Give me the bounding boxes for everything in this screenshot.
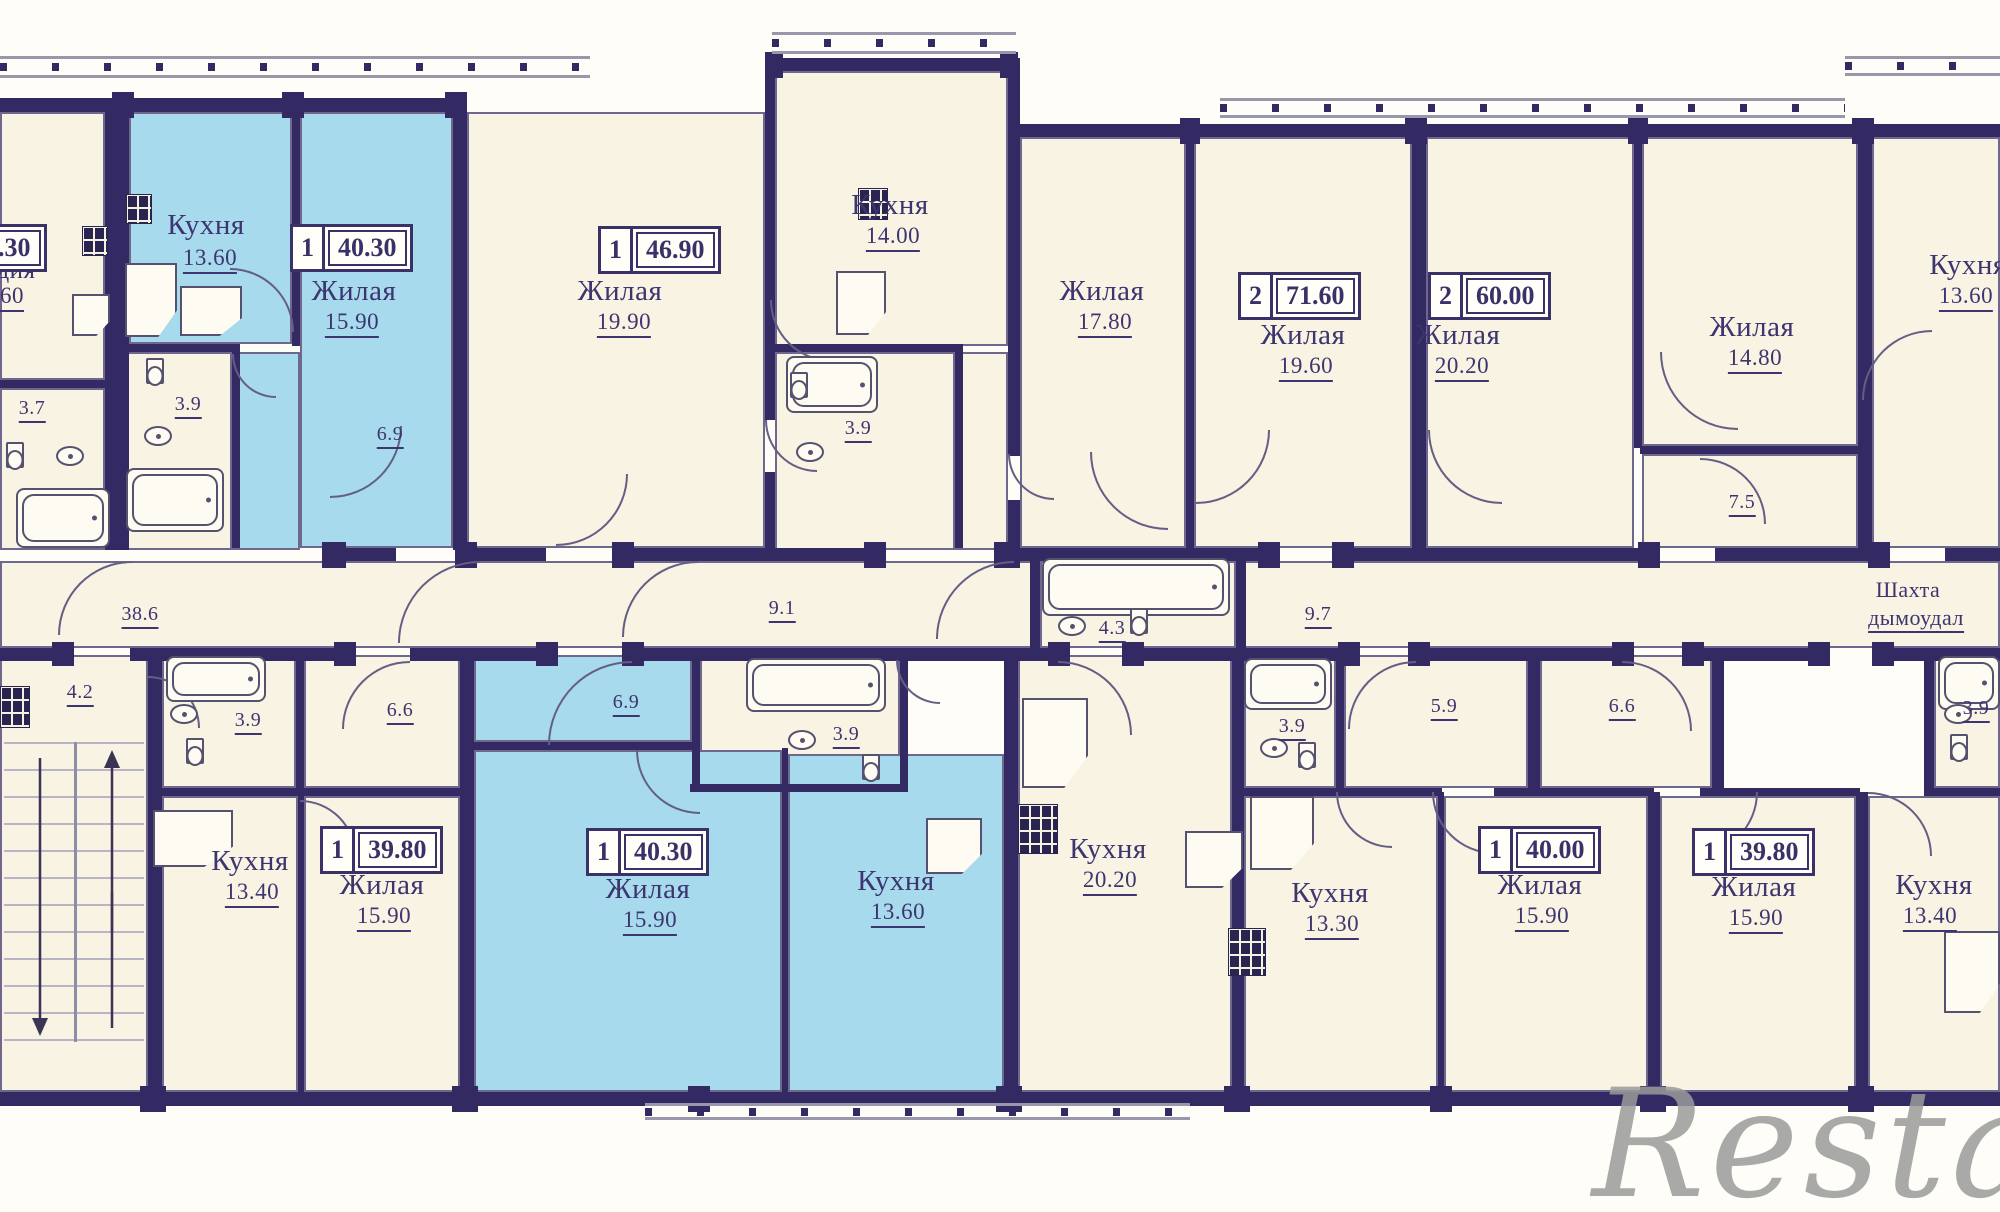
label-13.40: 13.40 [1903, 904, 1957, 932]
wall [1856, 792, 1868, 1094]
label-3.9: 3.9 [1279, 716, 1306, 741]
wall [1872, 642, 1894, 666]
label-Кухня: Кухня [1291, 878, 1369, 908]
label-Жилая: Жилая [578, 276, 663, 306]
sink-icon [144, 426, 172, 446]
sink-icon [1260, 738, 1288, 758]
wall [864, 542, 886, 568]
label-3.9: 3.9 [833, 724, 860, 749]
wall [1338, 642, 1360, 666]
vent-shaft-icon [0, 686, 30, 728]
door-arc-icon [1008, 454, 1054, 500]
badge-room-count: 1 [1695, 831, 1727, 873]
wall [322, 542, 346, 568]
wall [1715, 548, 1877, 561]
label-15.90: 15.90 [623, 908, 677, 936]
wall [1224, 1086, 1250, 1112]
label-3.9: 3.9 [175, 394, 202, 419]
sink-icon [788, 730, 816, 750]
badge-total-area: 39.80 [1730, 834, 1809, 870]
badge-room-count: 1 [601, 229, 633, 271]
wall [765, 52, 783, 78]
wall [1186, 124, 1194, 548]
label-13.60: 13.60 [183, 246, 237, 274]
label-Кухня: Кухня [211, 846, 289, 876]
label-Кухня: Кухня [167, 210, 245, 240]
label-Жилая: Жилая [1712, 872, 1797, 902]
label-3.9: 3.9 [235, 710, 262, 735]
badge-total-area: 40.30 [624, 834, 703, 870]
sink-icon [1058, 616, 1086, 636]
badge-room-count: 1 [1481, 829, 1513, 871]
wall [52, 642, 74, 666]
wall [1924, 655, 1934, 789]
wall [0, 648, 60, 661]
apartment-badge: 271.60 [1238, 272, 1361, 320]
badge-total-area: 40.00 [1516, 832, 1595, 868]
wall [0, 380, 110, 388]
label-13.30: 13.30 [1305, 912, 1359, 940]
label-15.90: 15.90 [357, 904, 411, 932]
label-14.80: 14.80 [1728, 346, 1782, 374]
toilet-icon [1298, 742, 1316, 768]
sink-icon [170, 704, 198, 724]
wall [445, 92, 467, 118]
balcony-rail [1220, 98, 1845, 118]
wall [1180, 118, 1200, 144]
label-Жилая: Жилая [1498, 870, 1583, 900]
wall [140, 1086, 166, 1112]
balcony-rail [772, 32, 1016, 54]
badge-total-area: 60.00 [1466, 278, 1545, 314]
label-3.7: 3.7 [19, 398, 46, 423]
label-6.9: 6.9 [613, 692, 640, 717]
label-19.60: 19.60 [1279, 354, 1333, 382]
toilet-icon [862, 754, 880, 780]
wall [782, 748, 788, 1096]
balcony-rail [0, 56, 590, 78]
toilet-icon [146, 358, 164, 384]
toilet-icon [790, 372, 808, 398]
badge-room-count: 2 [1241, 275, 1273, 317]
badge-room-count: 2 [1431, 275, 1463, 317]
apartment-badge: 140.00 [1478, 826, 1601, 874]
wall [1634, 124, 1642, 448]
bathtub-icon [166, 656, 266, 702]
bathtub-icon [1244, 658, 1332, 710]
label-15.90: 15.90 [1729, 906, 1783, 934]
label-Жилая: Жилая [340, 870, 425, 900]
bathtub-icon [16, 488, 110, 548]
wall [1258, 542, 1280, 568]
label-14.00: 14.00 [866, 224, 920, 252]
wall [460, 655, 474, 1099]
wall [1405, 118, 1427, 144]
vent-shaft-icon [126, 194, 152, 224]
sink-icon [796, 442, 824, 462]
label-15.90: 15.90 [1515, 904, 1569, 932]
wall [1494, 788, 1654, 796]
label-6.9: 6.9 [377, 424, 404, 449]
badge-total-area: 71.60 [1276, 278, 1355, 314]
toilet-icon [186, 738, 204, 764]
wall [1000, 52, 1018, 78]
label-Жилая: Жилая [1261, 320, 1346, 350]
label-4.2: 4.2 [67, 682, 94, 707]
balcony-rail [645, 1103, 1190, 1120]
wall [1438, 792, 1444, 1094]
wall [1640, 446, 1864, 454]
bathtub-icon [746, 658, 886, 712]
label-60: 60 [0, 284, 24, 312]
apartment-badge: 0.30 [0, 224, 47, 272]
label-Кухня: Кухня [857, 866, 935, 896]
label-19.90: 19.90 [597, 310, 651, 338]
vent-shaft-icon [1018, 804, 1058, 854]
label-5.9: 5.9 [1431, 696, 1458, 721]
label-Жилая: Жилая [312, 276, 397, 306]
apartment-badge: 140.30 [290, 224, 413, 272]
label-Кухня: Кухня [1895, 870, 1973, 900]
label-3.9: 3.9 [845, 418, 872, 443]
wall [1690, 648, 1816, 661]
apartment-badge: 140.30 [586, 828, 709, 876]
apartment-badge: 146.90 [598, 226, 721, 274]
wall [1122, 642, 1144, 666]
badge-total-area: 39.80 [358, 832, 437, 868]
label-38.6: 38.6 [122, 604, 159, 629]
wall [690, 784, 908, 792]
wall [765, 58, 775, 420]
wall [304, 788, 466, 796]
wall [1340, 548, 1646, 561]
watermark-restate: Restate [1592, 1058, 2000, 1212]
toilet-icon [1950, 734, 1968, 760]
label-Кухня: Кухня [1929, 250, 2000, 280]
badge-total-area: 0.30 [0, 230, 41, 266]
label-17.80: 17.80 [1078, 310, 1132, 338]
wall [410, 648, 546, 661]
label-Кухня: Кухня [851, 190, 929, 220]
wall [1336, 655, 1344, 789]
label-Жилая: Жилая [606, 874, 691, 904]
stairs-block [4, 742, 144, 1042]
wall [536, 642, 558, 666]
label-7.5: 7.5 [1729, 492, 1756, 517]
label-Жилая: Жилая [1060, 276, 1145, 306]
label-4.3: 4.3 [1099, 618, 1126, 643]
wall [1232, 655, 1244, 1099]
apartment-badge: 139.80 [320, 826, 443, 874]
label-13.60: 13.60 [1939, 284, 1993, 312]
wall [1638, 542, 1660, 568]
badge-room-count: 1 [293, 227, 325, 269]
apartment-badge: 139.80 [1692, 828, 1815, 876]
wall [955, 344, 963, 548]
wall [620, 548, 872, 561]
wall [1008, 58, 1020, 456]
wall [112, 92, 134, 118]
wall [1852, 118, 1874, 144]
label-Кухня: Кухня [1069, 834, 1147, 864]
badge-room-count: 1 [323, 829, 355, 871]
floor-plan: Restate дия60Кухня13.60Жилая15.903.73.96… [0, 0, 2000, 1212]
bathtub-icon [126, 468, 224, 532]
wall [1008, 500, 1020, 548]
badge-room-count: 1 [589, 831, 621, 873]
wall [282, 92, 304, 118]
wall [1682, 642, 1704, 666]
label-Жилая: Жилая [1710, 312, 1795, 342]
wall [470, 548, 546, 561]
badge-total-area: 40.30 [328, 230, 407, 266]
label-6.6: 6.6 [387, 700, 414, 725]
label-20.20: 20.20 [1435, 354, 1489, 382]
label-9.7: 9.7 [1305, 604, 1332, 629]
toilet-icon [6, 442, 24, 468]
wall [334, 642, 356, 666]
badge-total-area: 46.90 [636, 232, 715, 268]
label-6.6: 6.6 [1609, 696, 1636, 721]
wall [612, 542, 634, 568]
label-Жилая: Жилая [1416, 320, 1501, 350]
wall [1332, 542, 1354, 568]
wall [1924, 788, 2000, 796]
wall [1528, 655, 1540, 789]
vent-shaft-icon [82, 226, 108, 256]
wall [154, 788, 304, 796]
wall [1415, 648, 1621, 661]
wall [452, 1086, 478, 1112]
label-13.60: 13.60 [871, 900, 925, 928]
wall [1808, 642, 1830, 666]
wall [1430, 1086, 1452, 1112]
vent-shaft-icon [1228, 928, 1266, 976]
wall [1858, 124, 1872, 548]
label-13.40: 13.40 [225, 880, 279, 908]
wall [1712, 655, 1724, 789]
apartment-badge: 260.00 [1428, 272, 1551, 320]
sink-icon [56, 446, 84, 466]
wall [1030, 548, 1040, 661]
wall [1868, 542, 1890, 568]
label-Шахта: Шахта [1876, 578, 1941, 601]
wall [292, 98, 300, 346]
label-дымоудал: дымоудал [1868, 606, 1964, 633]
wall [1004, 655, 1018, 1099]
toilet-icon [1130, 608, 1148, 634]
label-3.9: 3.9 [1963, 698, 1990, 723]
room-living-14-80 [1642, 137, 1858, 446]
wall [122, 344, 240, 352]
wall [453, 98, 467, 550]
label-20.20: 20.20 [1083, 868, 1137, 896]
wall [1236, 548, 1246, 661]
label-9.1: 9.1 [769, 598, 796, 623]
wall [1628, 118, 1648, 144]
wall [772, 58, 1016, 71]
wall [296, 655, 304, 791]
label-15.90: 15.90 [325, 310, 379, 338]
wall [1945, 548, 2000, 561]
balcony-rail [1845, 56, 2000, 76]
wall [765, 472, 775, 550]
stairs-direction-arrows [4, 742, 144, 1042]
wall [0, 98, 462, 112]
wall [1648, 792, 1660, 1094]
